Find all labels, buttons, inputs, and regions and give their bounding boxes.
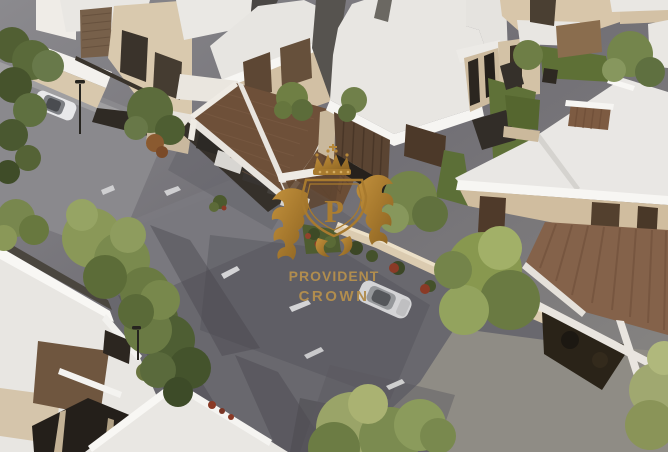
svg-text:P: P [324, 193, 344, 229]
svg-text:CROWN: CROWN [299, 288, 370, 305]
svg-text:PROVIDENT: PROVIDENT [289, 268, 380, 284]
